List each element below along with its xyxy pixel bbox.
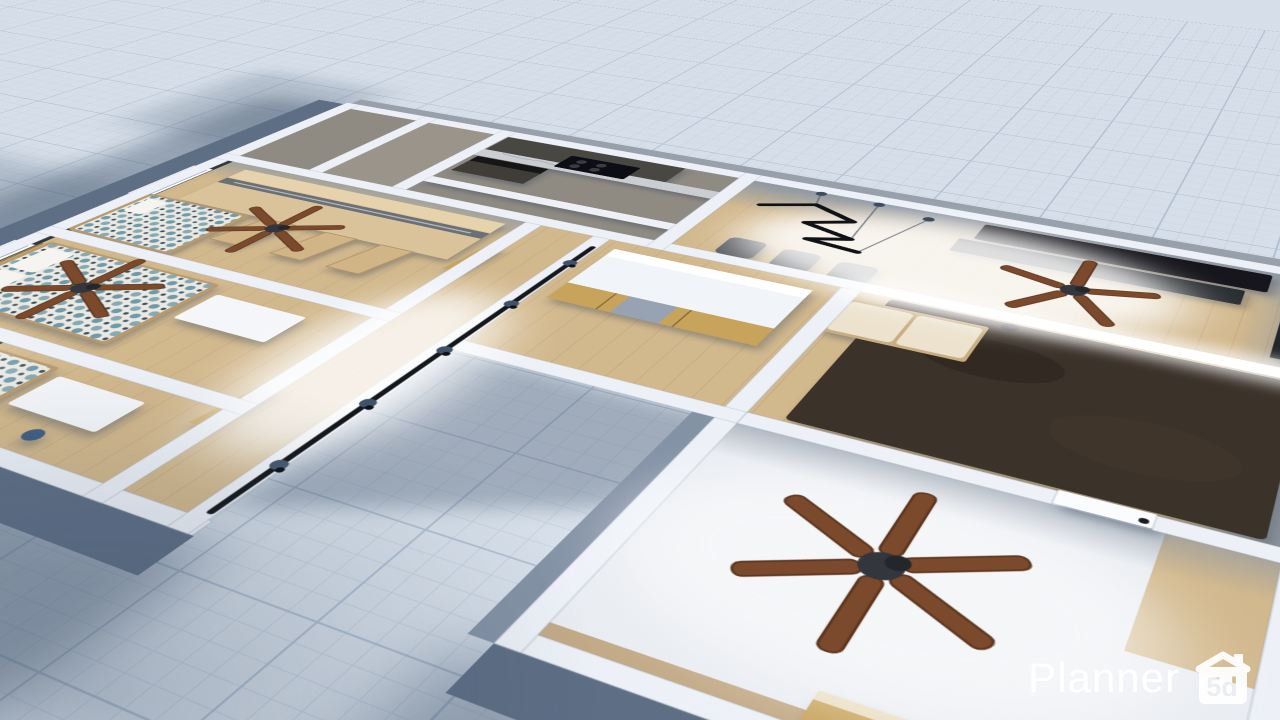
planner5d-brand-text: Planner	[1028, 657, 1180, 699]
render-viewport: Planner 5d	[0, 0, 1280, 720]
ground-grid	[0, 0, 1280, 720]
floorplan-art	[0, 0, 1280, 720]
planner5d-house-icon: 5d	[1192, 650, 1254, 706]
planner5d-watermark: Planner 5d	[1028, 650, 1254, 706]
scene-3d	[0, 0, 1280, 720]
